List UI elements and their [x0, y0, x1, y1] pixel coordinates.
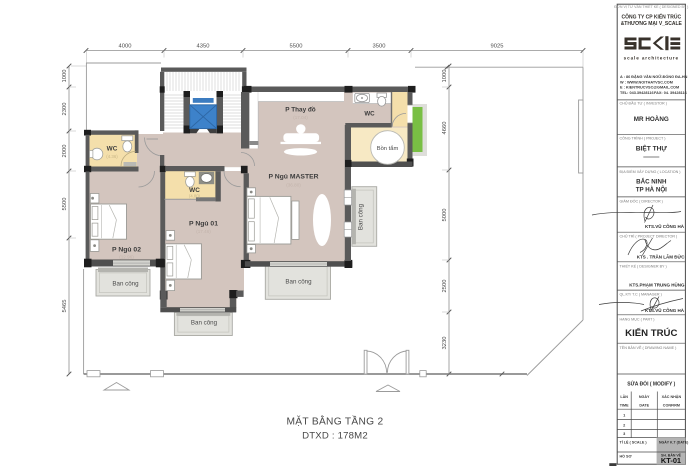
svg-text:3500: 3500: [373, 44, 386, 50]
svg-text:GIÁM ĐỐC ( DIRECTOR ): GIÁM ĐỐC ( DIRECTOR ): [620, 199, 663, 204]
svg-text:4350: 4350: [197, 44, 210, 50]
svg-text:KTS.VŨ CÔNG HÀ: KTS.VŨ CÔNG HÀ: [645, 222, 685, 229]
svg-text:5000: 5000: [442, 209, 448, 222]
svg-text:CONFIRM: CONFIRM: [663, 403, 680, 407]
svg-text:HẠNG MỤC ( PART ): HẠNG MỤC ( PART ): [620, 318, 655, 322]
svg-text:(17.04): (17.04): [293, 115, 308, 120]
svg-text:P Ngủ 02: P Ngủ 02: [112, 247, 141, 254]
svg-text:MẶT BẰNG TẦNG 2: MẶT BẰNG TẦNG 2: [287, 415, 384, 428]
svg-text:(12.96): (12.96): [119, 254, 134, 259]
svg-text:CÔNG TY CP KIẾN TRÚC: CÔNG TY CP KIẾN TRÚC: [622, 13, 682, 21]
svg-text:HỒ SƠ: HỒ SƠ: [620, 453, 633, 458]
svg-text:Ban công: Ban công: [112, 281, 139, 288]
svg-text:(4.80): (4.80): [189, 194, 201, 199]
svg-text:P Ngủ 01: P Ngủ 01: [189, 221, 218, 228]
svg-text:NGÀY K.T (DATE): NGÀY K.T (DATE): [659, 439, 688, 444]
svg-text:DATE: DATE: [639, 403, 649, 407]
svg-text:CÔNG TRÌNH ( PROJECT ): CÔNG TRÌNH ( PROJECT ): [620, 135, 666, 140]
svg-text:1000: 1000: [62, 70, 68, 83]
svg-text:P Ngủ MASTER: P Ngủ MASTER: [268, 174, 318, 181]
svg-text:5465: 5465: [62, 300, 68, 313]
svg-text:Ban công: Ban công: [358, 203, 365, 230]
svg-text:KTS.VŨ CÔNG HÀ: KTS.VŨ CÔNG HÀ: [645, 306, 685, 313]
svg-text:KTS.PHẠM TRUNG HÙNG: KTS.PHẠM TRUNG HÙNG: [629, 281, 685, 287]
svg-text:THIẾT KẾ ( DESIGNER BY ): THIẾT KẾ ( DESIGNER BY ): [620, 263, 667, 268]
svg-text:WC: WC: [364, 111, 375, 118]
svg-text:KIẾN TRÚC: KIẾN TRÚC: [625, 327, 677, 339]
svg-text:Ban công: Ban công: [191, 320, 218, 327]
svg-text:Ban công: Ban công: [285, 279, 312, 286]
svg-text:scale architecture: scale architecture: [624, 55, 679, 60]
svg-text:&THƯƠNG MẠI V_SCALE: &THƯƠNG MẠI V_SCALE: [621, 21, 683, 27]
svg-text:Bồn tắm: Bồn tắm: [377, 145, 399, 152]
svg-text:4000: 4000: [119, 44, 132, 50]
svg-text:LẦN: LẦN: [620, 395, 628, 399]
svg-text:5500: 5500: [290, 44, 303, 50]
svg-text:KT-01: KT-01: [661, 456, 681, 465]
svg-text:KTS . TRẦN LÂM ĐỨC: KTS . TRẦN LÂM ĐỨC: [637, 253, 685, 259]
svg-text:TEL: 043.39428116: TEL: 043.39428116: [620, 91, 654, 95]
svg-text:NGÀY: NGÀY: [639, 394, 650, 399]
svg-text:SỬA ĐỔI ( MODIFY ): SỬA ĐỔI ( MODIFY ): [627, 380, 675, 387]
svg-text:TP HÀ NỘI: TP HÀ NỘI: [636, 185, 667, 193]
svg-text:QL.KT/ T.C ( MANAGER ): QL.KT/ T.C ( MANAGER ): [620, 293, 662, 297]
svg-text:CHỦ ĐẦU TƯ ( INVESTOR ): CHỦ ĐẦU TƯ ( INVESTOR ): [620, 101, 667, 106]
svg-text:DTXD : 178M2: DTXD : 178M2: [302, 431, 368, 442]
svg-text:FAX: 04. 39428116: FAX: 04. 39428116: [654, 91, 687, 95]
svg-text:2000: 2000: [62, 145, 68, 158]
svg-text:W : WWW.NOITHATVSC.COM: W : WWW.NOITHATVSC.COM: [620, 80, 673, 84]
svg-text:A : 86 ĐẶNG VĂN NGỮ-ĐỐNG ĐA-H: A : 86 ĐẶNG VĂN NGỮ-ĐỐNG ĐA-HN: [620, 74, 688, 79]
svg-text:WC: WC: [107, 146, 118, 153]
svg-text:2300: 2300: [62, 103, 68, 116]
svg-text:(4.36): (4.36): [106, 154, 118, 159]
svg-text:CHỦ TRÌ ( PROJECT DIRECTOR ): CHỦ TRÌ ( PROJECT DIRECTOR ): [620, 234, 678, 239]
svg-text:3230: 3230: [442, 337, 448, 350]
svg-text:BẮC NINH: BẮC NINH: [636, 178, 667, 186]
svg-text:ĐỊA ĐIỂM XÂY DỰNG ( LOCATION ): ĐỊA ĐIỂM XÂY DỰNG ( LOCATION ): [620, 169, 681, 174]
svg-text:MR HOÀNG: MR HOÀNG: [634, 114, 669, 123]
svg-text:TÊN BẢN VẼ ( DRAWING NAME ): TÊN BẢN VẼ ( DRAWING NAME ): [620, 345, 677, 350]
svg-text:1000: 1000: [442, 70, 448, 83]
svg-text:E : KIENTRUCVSC@GMAIL.COM: E : KIENTRUCVSC@GMAIL.COM: [620, 86, 679, 90]
svg-text:2500: 2500: [442, 280, 448, 293]
svg-text:5500: 5500: [62, 198, 68, 211]
svg-text:BIỆT THỰ: BIỆT THỰ: [636, 143, 668, 152]
svg-text:P Thay đồ: P Thay đồ: [285, 105, 316, 114]
svg-text:TỈ LỆ ( SCALE ): TỈ LỆ ( SCALE ): [620, 439, 648, 444]
svg-text:TIME: TIME: [620, 403, 629, 407]
svg-text:XÁC NHẬN: XÁC NHẬN: [662, 394, 682, 399]
svg-text:4660: 4660: [442, 122, 448, 135]
svg-text:(17.46): (17.46): [196, 229, 211, 234]
svg-text:ĐƠN VỊ TƯ VẤN THIẾT KẾ ( DESIG: ĐƠN VỊ TƯ VẤN THIẾT KẾ ( DESIGNED BY ): [614, 4, 688, 9]
svg-text:(36.80): (36.80): [286, 183, 301, 188]
svg-text:9025: 9025: [491, 44, 504, 50]
